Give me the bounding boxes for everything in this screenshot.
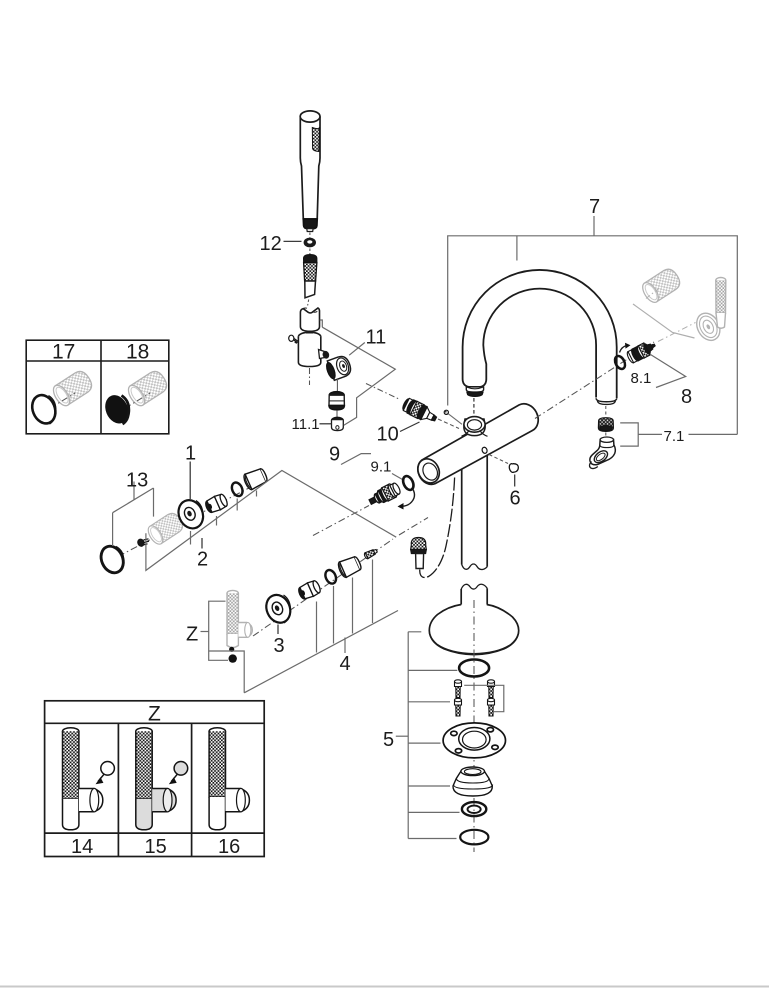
svg-text:13: 13 xyxy=(126,470,148,492)
svg-text:1: 1 xyxy=(185,443,196,465)
svg-text:2: 2 xyxy=(197,549,208,571)
svg-text:10: 10 xyxy=(377,424,399,446)
svg-text:17: 17 xyxy=(52,341,75,364)
svg-text:Z: Z xyxy=(148,703,161,726)
svg-text:15: 15 xyxy=(145,836,167,858)
svg-text:Z: Z xyxy=(186,624,198,646)
svg-text:9: 9 xyxy=(329,444,340,466)
svg-text:9.1: 9.1 xyxy=(371,459,392,476)
svg-text:18: 18 xyxy=(126,341,149,364)
svg-text:5: 5 xyxy=(383,729,394,751)
svg-text:3: 3 xyxy=(274,635,285,657)
svg-text:8.1: 8.1 xyxy=(631,370,652,387)
svg-text:12: 12 xyxy=(260,233,282,255)
svg-text:11: 11 xyxy=(366,327,387,349)
svg-text:4: 4 xyxy=(340,653,351,675)
svg-text:6: 6 xyxy=(510,488,521,510)
svg-text:7.1: 7.1 xyxy=(664,428,685,445)
svg-text:14: 14 xyxy=(71,836,93,858)
svg-text:11.1: 11.1 xyxy=(292,416,320,433)
svg-text:8: 8 xyxy=(681,386,692,408)
svg-text:16: 16 xyxy=(218,836,240,858)
svg-text:7: 7 xyxy=(589,196,600,218)
